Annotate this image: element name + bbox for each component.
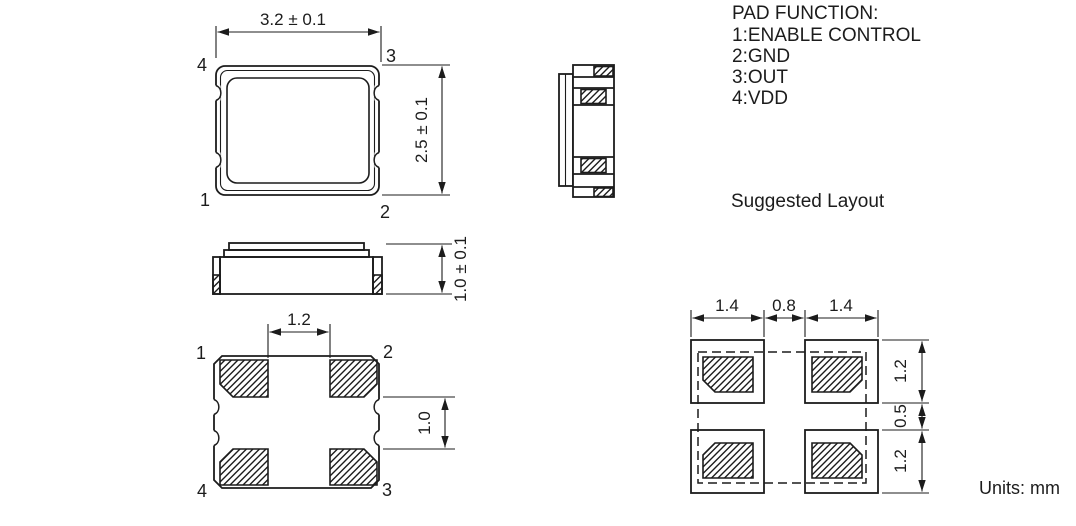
end-view [559, 65, 614, 197]
layout-pad-1 [703, 357, 753, 392]
layout-pad-4 [703, 443, 753, 478]
package-drawing-svg: 4 3 1 2 3.2 ± 0.1 2.5 ± 0.1 1.0 ± 0.1 [0, 0, 1076, 526]
bottom-view-pin-1-label: 1 [196, 343, 206, 363]
side-view-lid-step [224, 250, 369, 257]
layout-pad-3 [812, 443, 862, 478]
suggested-layout-view [691, 340, 878, 493]
side-view-right-terminal-hatch [373, 275, 382, 294]
dim-pad-span-text: 1.2 [287, 310, 311, 329]
bottom-view: 1 2 4 3 [196, 342, 393, 501]
bottom-view-pad-3 [330, 449, 377, 485]
dimension-height-2-5: 2.5 ± 0.1 [382, 65, 450, 195]
dimension-pad-span-1-2: 1.2 [268, 310, 330, 358]
side-view-left-terminal-hatch [213, 275, 220, 294]
end-view-body [573, 65, 614, 197]
dim-layout-mid-gap-text: 0.5 [891, 404, 910, 428]
side-view [213, 243, 382, 294]
dimension-width-3-2: 3.2 ± 0.1 [216, 10, 381, 62]
units-label: Units: mm [979, 478, 1060, 498]
layout-pad-2 [812, 357, 862, 392]
top-view-pin-3-label: 3 [386, 46, 396, 66]
dim-layout-left-pad-text: 1.4 [715, 296, 739, 315]
bottom-view-pad-4 [220, 449, 268, 485]
end-view-hatch-lower [581, 159, 606, 173]
top-view-body-outline [216, 66, 379, 195]
layout-dimensions-horizontal: 1.4 0.8 1.4 [691, 296, 878, 337]
bottom-view-pin-4-label: 4 [197, 481, 207, 501]
dim-thickness-text: 1.0 ± 0.1 [451, 236, 470, 302]
dim-pad-gap-text: 1.0 [415, 411, 434, 435]
top-view-pin-2-label: 2 [380, 202, 390, 222]
suggested-layout-label: Suggested Layout [731, 191, 885, 212]
bottom-view-pad-2 [330, 360, 377, 397]
dim-layout-top-pad-text: 1.2 [891, 359, 910, 383]
dim-height-text: 2.5 ± 0.1 [412, 97, 431, 163]
pad-function-block: PAD FUNCTION: 1:ENABLE CONTROL 2:GND 3:O… [732, 3, 921, 109]
dim-width-text: 3.2 ± 0.1 [260, 10, 326, 29]
drawing-canvas: 4 3 1 2 3.2 ± 0.1 2.5 ± 0.1 1.0 ± 0.1 [0, 0, 1076, 526]
layout-dimensions-vertical: 1.2 0.5 1.2 [882, 340, 929, 493]
pad-function-item-2: 2:GND [732, 46, 790, 67]
side-view-body [220, 257, 373, 294]
top-view: 4 3 1 2 [197, 46, 396, 222]
end-view-hatch-top [594, 67, 613, 77]
pad-function-item-1: 1:ENABLE CONTROL [732, 25, 921, 46]
side-view-lid-top [229, 243, 364, 250]
top-view-pin-4-label: 4 [197, 55, 207, 75]
pad-function-title: PAD FUNCTION: [732, 3, 878, 24]
dim-layout-gap-text: 0.8 [772, 296, 796, 315]
end-view-hatch-upper [581, 90, 606, 104]
pad-function-item-3: 3:OUT [732, 67, 788, 88]
end-view-hatch-bottom [594, 188, 613, 197]
bottom-view-pin-3-label: 3 [382, 480, 392, 500]
dimension-thickness-1-0: 1.0 ± 0.1 [386, 236, 470, 302]
pad-function-item-4: 4:VDD [732, 88, 788, 109]
top-view-pin-1-label: 1 [200, 190, 210, 210]
dim-layout-bottom-pad-text: 1.2 [891, 449, 910, 473]
bottom-view-pad-1 [220, 360, 268, 397]
dimension-pad-gap-1-0: 1.0 [383, 397, 455, 449]
dim-layout-right-pad-text: 1.4 [829, 296, 853, 315]
bottom-view-pin-2-label: 2 [383, 342, 393, 362]
